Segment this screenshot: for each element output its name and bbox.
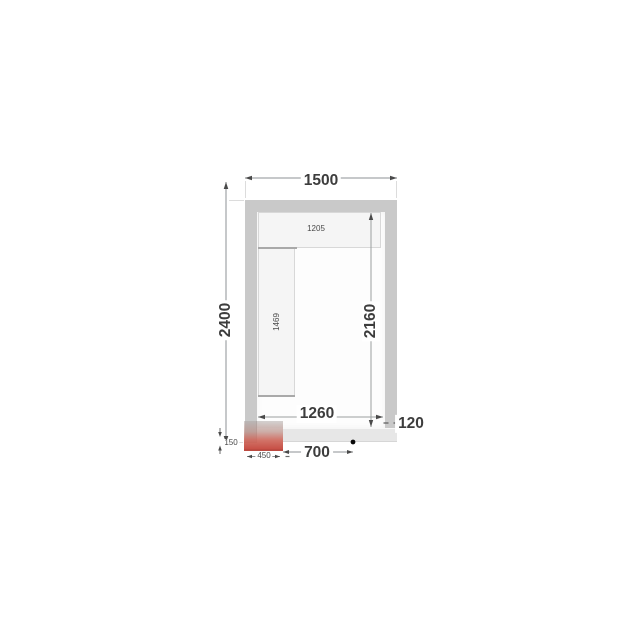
wall-bottom-door-side [283, 428, 397, 442]
wall-top [245, 200, 397, 212]
dim-wall-thickness-label: 120 [395, 415, 427, 433]
shelf-top-length-label: 1205 [305, 225, 327, 233]
shelf-left-front-edge [258, 395, 295, 398]
dim-inner-depth-label: 2160 [362, 301, 380, 341]
dim-outer-width-label: 1500 [301, 172, 341, 190]
dim-door-opening-label: 700 [301, 444, 333, 462]
shelf-top-front-edge [258, 247, 297, 250]
wall-right [385, 200, 397, 442]
dim-inner-width-label: 1260 [297, 405, 337, 423]
door-panel [244, 421, 283, 451]
floor-plan-canvas: 1500 2400 2160 1260 700 120 450 150 1205… [0, 0, 640, 640]
shelf-left-length-label: 1469 [273, 311, 281, 333]
dim-outer-depth-label: 2400 [217, 300, 235, 340]
dim-line-door-sill [218, 428, 222, 454]
dim-door-panel-label: 450 [255, 452, 272, 460]
wall-left [245, 200, 257, 443]
dim-door-sill-label: 150 [222, 439, 239, 447]
